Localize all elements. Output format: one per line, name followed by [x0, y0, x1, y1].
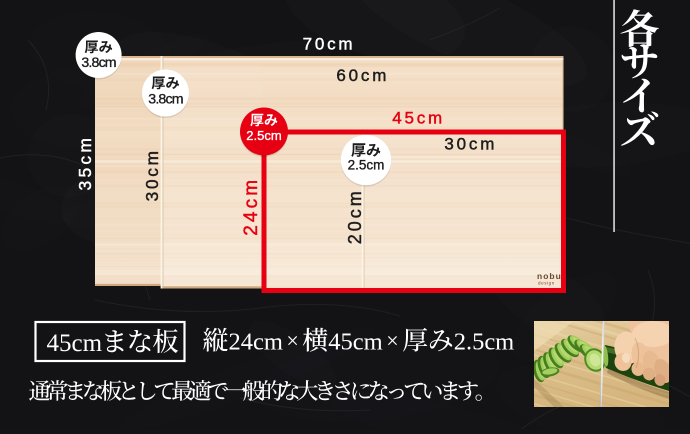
- svg-text:2.5cm: 2.5cm: [246, 128, 281, 143]
- svg-text:×: ×: [386, 328, 398, 353]
- svg-text:24cm: 24cm: [241, 177, 262, 236]
- svg-text:24cm: 24cm: [229, 329, 283, 356]
- svg-text:design: design: [538, 281, 555, 286]
- svg-text:3.8cm: 3.8cm: [148, 91, 182, 107]
- svg-text:×: ×: [286, 328, 298, 353]
- svg-text:2.5cm: 2.5cm: [454, 329, 515, 356]
- svg-text:70cm: 70cm: [303, 35, 356, 54]
- svg-text:3.8cm: 3.8cm: [81, 55, 115, 71]
- svg-text:60cm: 60cm: [336, 66, 389, 85]
- svg-text:35cm: 35cm: [75, 135, 95, 191]
- svg-text:45cm: 45cm: [47, 330, 103, 357]
- svg-text:30cm: 30cm: [142, 148, 162, 201]
- svg-text:45cm: 45cm: [328, 329, 382, 356]
- svg-text:2.5cm: 2.5cm: [348, 158, 385, 173]
- svg-text:30cm: 30cm: [444, 135, 497, 154]
- svg-text:45cm: 45cm: [392, 108, 445, 127]
- svg-text:20cm: 20cm: [345, 188, 365, 244]
- svg-text:nobu: nobu: [537, 271, 562, 281]
